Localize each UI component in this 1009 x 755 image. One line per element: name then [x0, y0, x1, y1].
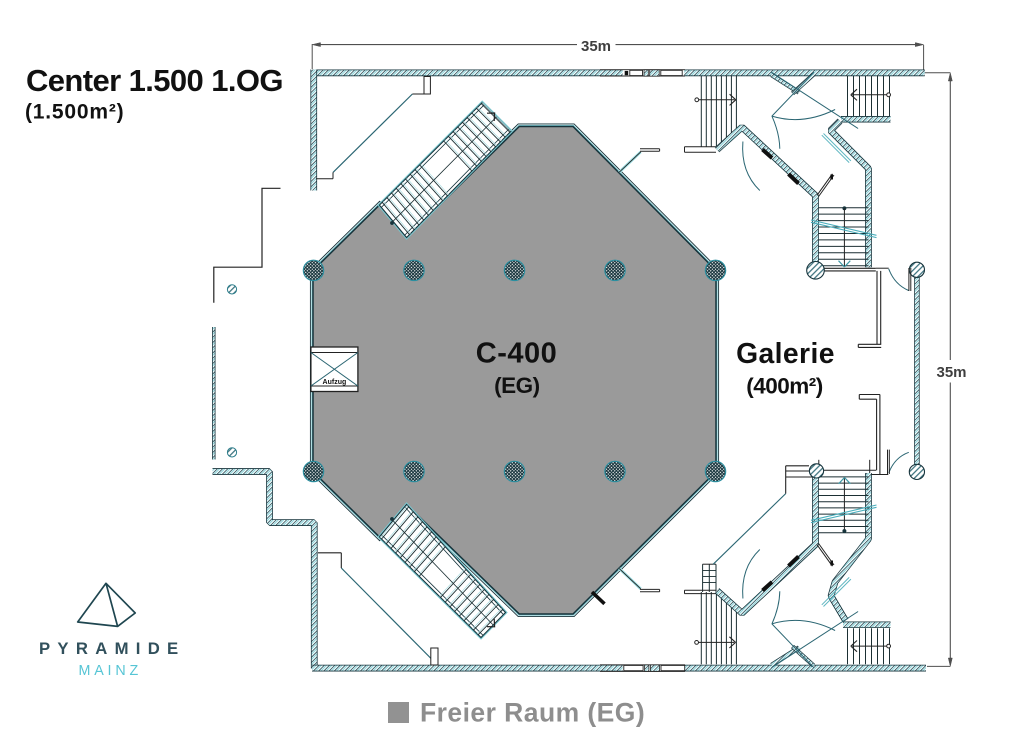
- svg-text:Galerie: Galerie: [736, 337, 835, 369]
- svg-text:(400m²): (400m²): [746, 374, 823, 399]
- svg-text:PYRAMIDE: PYRAMIDE: [39, 639, 185, 658]
- svg-text:(1.500m²): (1.500m²): [25, 101, 124, 124]
- svg-text:Aufzug: Aufzug: [323, 379, 347, 386]
- svg-text:35m: 35m: [936, 364, 966, 381]
- svg-text:35m: 35m: [581, 38, 611, 55]
- svg-text:(EG): (EG): [494, 373, 540, 398]
- svg-text:C-400: C-400: [476, 338, 558, 370]
- svg-text:Center 1.500 1.OG: Center 1.500 1.OG: [26, 63, 283, 98]
- svg-text:Freier Raum (EG): Freier Raum (EG): [420, 697, 645, 727]
- svg-text:MAINZ: MAINZ: [79, 663, 142, 679]
